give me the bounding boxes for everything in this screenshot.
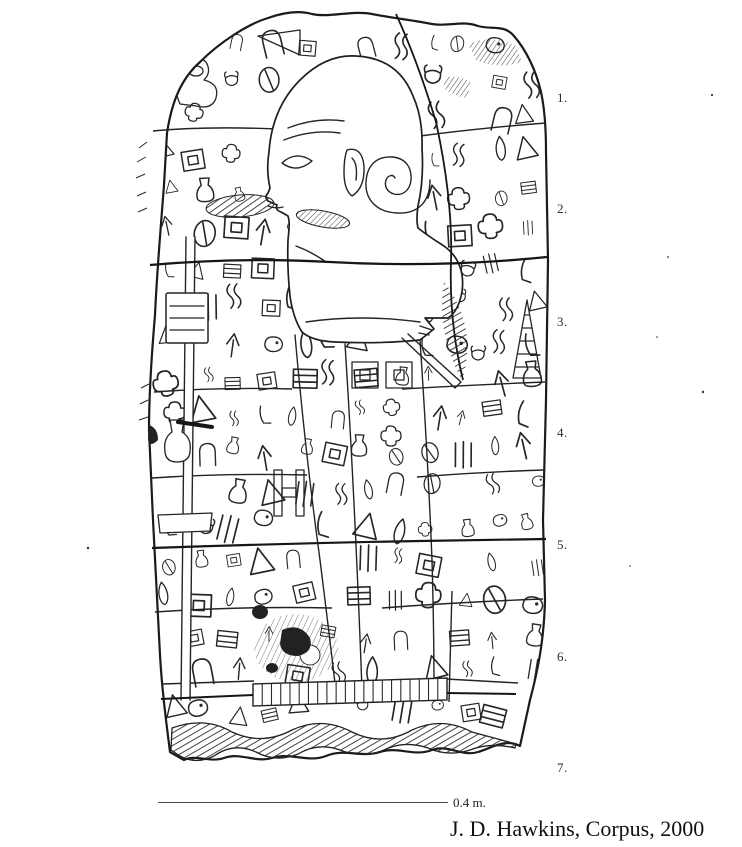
stele-line-drawing	[0, 0, 742, 847]
register-number-7: 7.	[557, 760, 568, 776]
figure-page: 1. 2. 3. 4. 5. 6. 7. 0.4 m. J. D. Hawkin…	[0, 0, 742, 847]
register-number-5: 5.	[557, 537, 568, 553]
register-number-6: 6.	[557, 649, 568, 665]
register-number-4: 4.	[557, 425, 568, 441]
register-number-2: 2.	[557, 201, 568, 217]
caption-citation: J. D. Hawkins, Corpus, 2000	[450, 816, 742, 842]
scale-bar-line	[158, 802, 448, 805]
register-number-1: 1.	[557, 90, 568, 106]
scale-bar-label: 0.4 m.	[453, 795, 486, 811]
register-number-3: 3.	[557, 314, 568, 330]
